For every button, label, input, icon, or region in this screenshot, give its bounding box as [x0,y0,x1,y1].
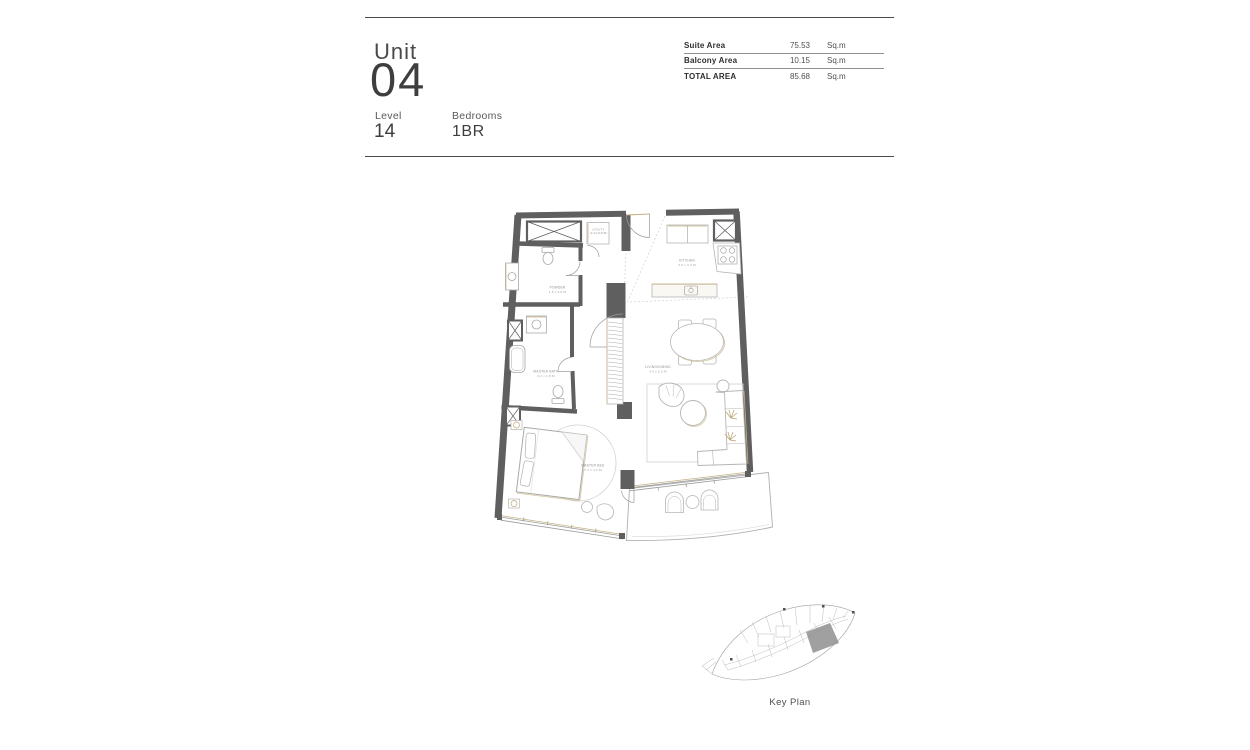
unit-number: 04 [370,55,426,104]
total-area-value: 85.68 [774,72,810,81]
dining-table [671,324,724,361]
bath-toilet-bowl [553,386,563,398]
side-table [717,380,729,392]
room-dims-living-dining: 4.0 x 5.5 M [649,369,667,373]
bedrooms-label: Bedrooms [452,110,502,122]
suite-area-value: 75.53 [774,41,810,50]
room-dims-master-bath: 3.2 x 1.8 M [537,374,555,378]
bedroom-chair [597,504,614,520]
key-plan-core-dots [730,605,855,661]
room-label-utility: UTILITY [592,228,604,232]
living-room [647,380,748,466]
balcony-table [686,496,699,509]
pillow [525,433,536,458]
balcony-area-label: Balcony Area [684,56,774,65]
sofa [698,391,747,466]
bedrooms-value: 1BR [452,123,485,141]
total-area-unit: Sq.m [827,72,884,81]
room-dims-master-bed: 3.7 x 4.2 M [584,468,602,472]
top-rule [365,17,894,18]
bath-sink [532,320,541,329]
coffee-table [681,401,706,426]
armchair [659,383,684,406]
ottoman [582,502,593,513]
floor-plan-sheet: Unit 04 Level 14 Bedrooms 1BR Suite Area… [0,0,1250,750]
level-value: 14 [374,121,395,143]
toilet-bowl [543,253,553,265]
key-plan [700,598,880,693]
room-dims-utility: 1.1 x 0.9 M [591,231,607,235]
table-row-total-area: TOTAL AREA 85.68 Sq.m [684,69,884,85]
balcony-furniture [666,490,719,512]
table-row-suite-area: Suite Area 75.53 Sq.m [684,38,884,54]
sink-basin [508,273,516,281]
room-dims-powder: 1.5 x 2.0 M [549,290,567,294]
key-plan-label: Key Plan [700,697,880,708]
shaft-top-right [714,221,736,241]
shaft-mid-left [508,321,522,341]
toilet-tank [542,248,554,253]
room-dims-kitchen: 3.5 x 3.4 M [678,263,696,267]
balcony-area-unit: Sq.m [827,56,884,65]
wardrobe [607,318,623,404]
table-row-balcony-area: Balcony Area 10.15 Sq.m [684,54,884,70]
shaft-top-left [527,222,581,242]
total-area-label: TOTAL AREA [684,72,774,81]
suite-area-label: Suite Area [684,41,774,50]
header-bottom-rule [365,156,894,157]
suite-area-unit: Sq.m [827,41,884,50]
floor-plan: UTILITY 1.1 x 0.9 M KITCHEN 3.5 x 3.4 M … [480,200,780,555]
bed [516,427,588,501]
key-plan-highlighted-unit [806,623,839,653]
bath-toilet-tank [552,399,564,404]
area-table: Suite Area 75.53 Sq.m Balcony Area 10.15… [684,38,884,85]
dining-set [671,319,725,365]
balcony-area-value: 10.15 [774,56,810,65]
